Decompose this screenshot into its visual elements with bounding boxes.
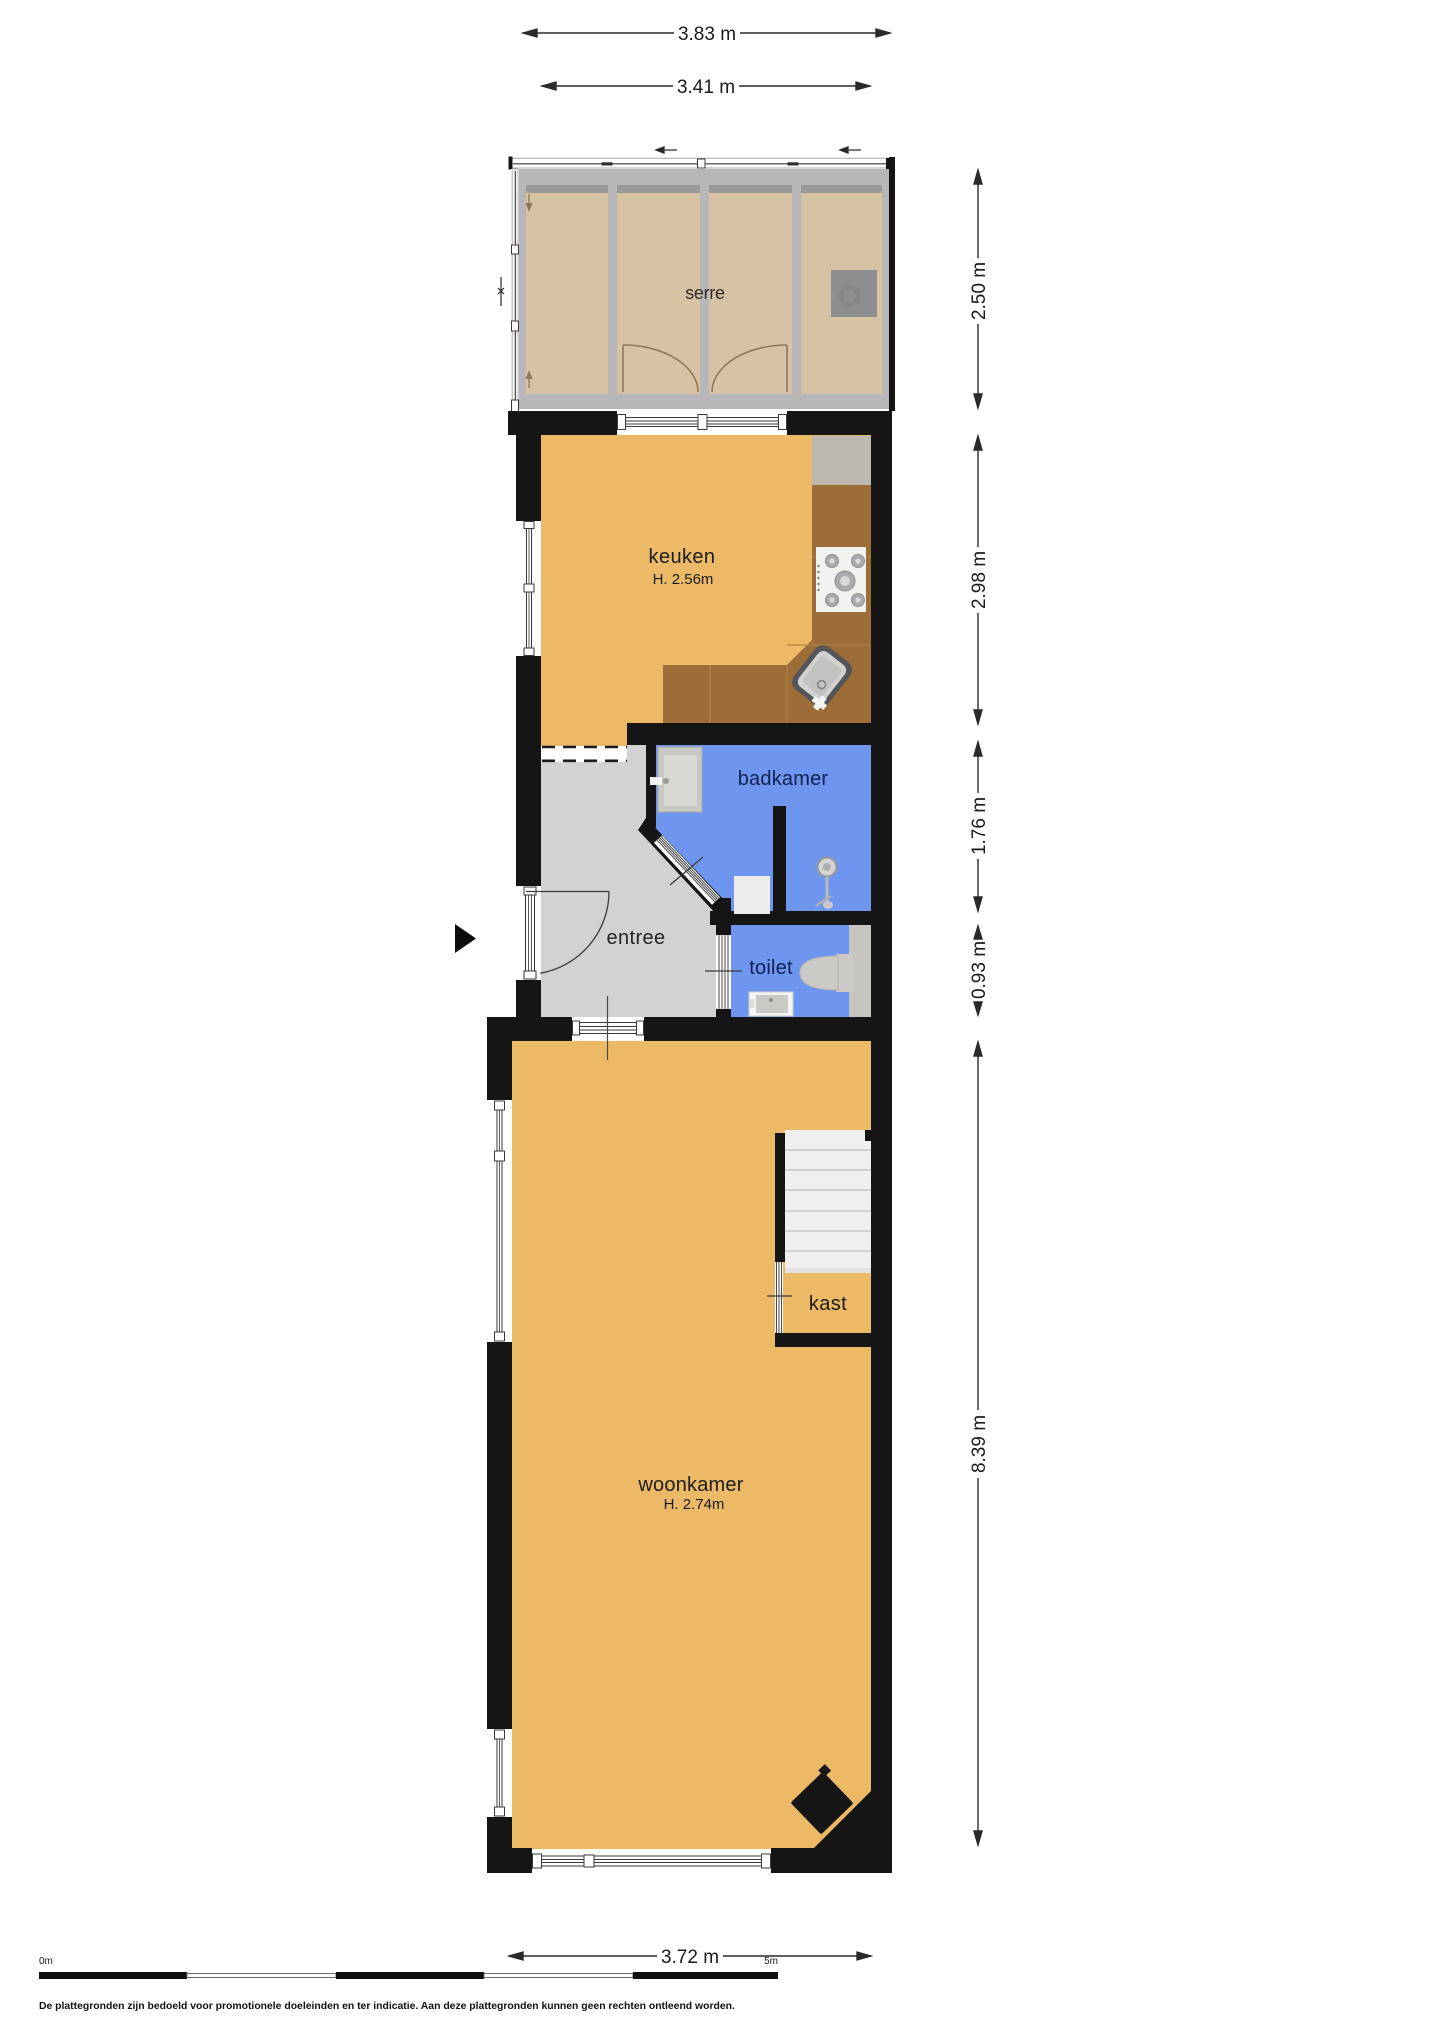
svg-text:0.93 m: 0.93 m bbox=[969, 941, 990, 999]
svg-text:H. 2.56m: H. 2.56m bbox=[653, 571, 714, 588]
svg-text:entree: entree bbox=[606, 927, 665, 949]
svg-text:toilet: toilet bbox=[749, 957, 793, 979]
svg-text:3.72 m: 3.72 m bbox=[661, 1947, 719, 1968]
svg-text:3.41 m: 3.41 m bbox=[677, 77, 735, 98]
svg-text:0m: 0m bbox=[39, 1956, 53, 1967]
svg-text:2.98 m: 2.98 m bbox=[969, 551, 990, 609]
svg-text:3.83 m: 3.83 m bbox=[678, 24, 736, 45]
svg-text:keuken: keuken bbox=[649, 546, 716, 568]
svg-text:De plattegronden zijn bedoeld: De plattegronden zijn bedoeld voor promo… bbox=[39, 2001, 735, 2012]
svg-text:2.50 m: 2.50 m bbox=[969, 262, 990, 320]
svg-text:H. 2.74m: H. 2.74m bbox=[664, 1496, 725, 1513]
svg-text:8.39 m: 8.39 m bbox=[969, 1415, 990, 1473]
svg-text:serre: serre bbox=[685, 283, 725, 303]
svg-text:5m: 5m bbox=[764, 1956, 778, 1967]
svg-text:1.76 m: 1.76 m bbox=[969, 797, 990, 855]
svg-text:badkamer: badkamer bbox=[738, 768, 829, 790]
svg-text:kast: kast bbox=[809, 1293, 847, 1315]
svg-text:woonkamer: woonkamer bbox=[637, 1474, 743, 1496]
